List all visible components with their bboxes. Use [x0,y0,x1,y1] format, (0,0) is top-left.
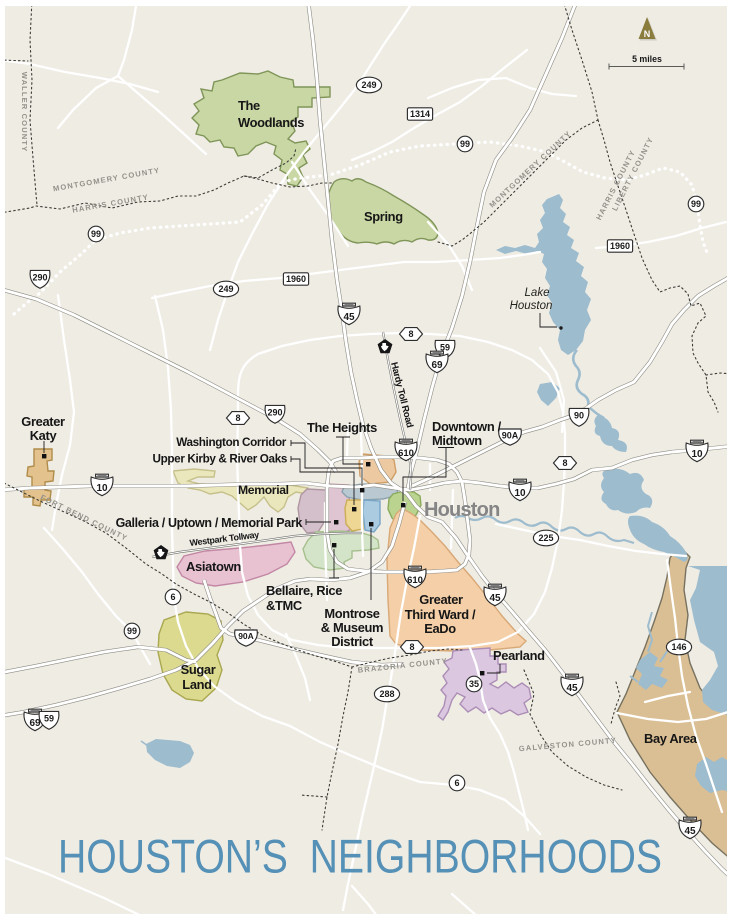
svg-text:90A: 90A [502,430,519,440]
svg-text:HOUSTON’S NEIGHBORHOODS: HOUSTON’S NEIGHBORHOODS [58,830,662,883]
svg-text:Lake: Lake [525,287,550,299]
svg-text:10: 10 [514,488,526,499]
svg-text:WALLER COUNTY: WALLER COUNTY [20,72,29,153]
svg-text:Upper Kirby & River Oaks: Upper Kirby & River Oaks [153,453,288,466]
svg-text:45: 45 [566,683,578,694]
svg-text:290: 290 [32,272,47,282]
svg-text:99: 99 [691,199,701,209]
svg-text:Memorial: Memorial [238,483,289,497]
svg-text:35: 35 [469,679,479,689]
svg-text:5 miles: 5 miles [632,54,662,64]
svg-text:99: 99 [91,229,101,239]
svg-text:10: 10 [691,449,703,460]
svg-text:Asiatown: Asiatown [186,559,241,574]
svg-text:8: 8 [235,413,240,423]
svg-text:& Museum: & Museum [321,620,383,635]
svg-text:8: 8 [562,458,567,468]
svg-text:90A: 90A [238,631,254,641]
svg-text:Washington Corridor: Washington Corridor [176,436,287,449]
svg-text:Sugar: Sugar [181,662,216,677]
svg-text:1314: 1314 [410,109,430,119]
svg-text:610: 610 [398,448,414,459]
svg-text:10: 10 [96,483,108,494]
svg-text:8: 8 [408,329,413,339]
svg-text:610: 610 [407,575,423,586]
svg-text:Houston: Houston [510,300,553,312]
svg-text:Greater: Greater [419,592,463,607]
svg-text:Land: Land [182,677,212,692]
svg-text:225: 225 [538,533,553,543]
svg-text:6: 6 [454,778,459,788]
svg-text:Woodlands: Woodlands [238,115,304,130]
svg-text:249: 249 [218,284,233,294]
svg-text:District: District [331,634,374,649]
svg-text:&TMC: &TMC [266,598,302,613]
svg-text:45: 45 [343,312,355,323]
svg-text:Montrose: Montrose [324,606,379,621]
svg-text:Pearland: Pearland [493,648,545,663]
svg-text:6: 6 [170,592,175,602]
svg-text:The Heights: The Heights [307,420,377,435]
svg-text:1960: 1960 [286,274,306,284]
svg-text:290: 290 [267,407,282,417]
svg-text:Bellaire, Rice: Bellaire, Rice [266,583,342,598]
svg-text:45: 45 [684,826,696,837]
svg-text:N: N [644,29,651,39]
svg-text:146: 146 [671,642,686,652]
svg-text:90: 90 [574,410,584,420]
svg-text:249: 249 [361,80,376,90]
svg-text:69: 69 [431,360,443,371]
svg-text:EaDo: EaDo [424,621,456,636]
svg-text:Galleria / Uptown / Memorial P: Galleria / Uptown / Memorial Park [116,516,303,530]
svg-text:Downtown /: Downtown / [432,419,502,434]
svg-text:Third Ward /: Third Ward / [405,607,476,622]
svg-text:59: 59 [44,713,54,723]
svg-text:99: 99 [460,139,470,149]
svg-text:Midtown: Midtown [432,433,482,448]
svg-text:Houston: Houston [424,499,500,521]
svg-text:45: 45 [489,593,501,604]
svg-text:Katy: Katy [30,428,58,443]
svg-text:Bay Area: Bay Area [644,731,698,746]
svg-text:The: The [238,98,260,113]
svg-text:Spring: Spring [364,209,403,224]
svg-text:1960: 1960 [610,241,630,251]
svg-text:288: 288 [379,689,394,699]
svg-text:8: 8 [409,642,414,652]
svg-text:Greater: Greater [21,414,65,429]
svg-text:99: 99 [127,626,137,636]
